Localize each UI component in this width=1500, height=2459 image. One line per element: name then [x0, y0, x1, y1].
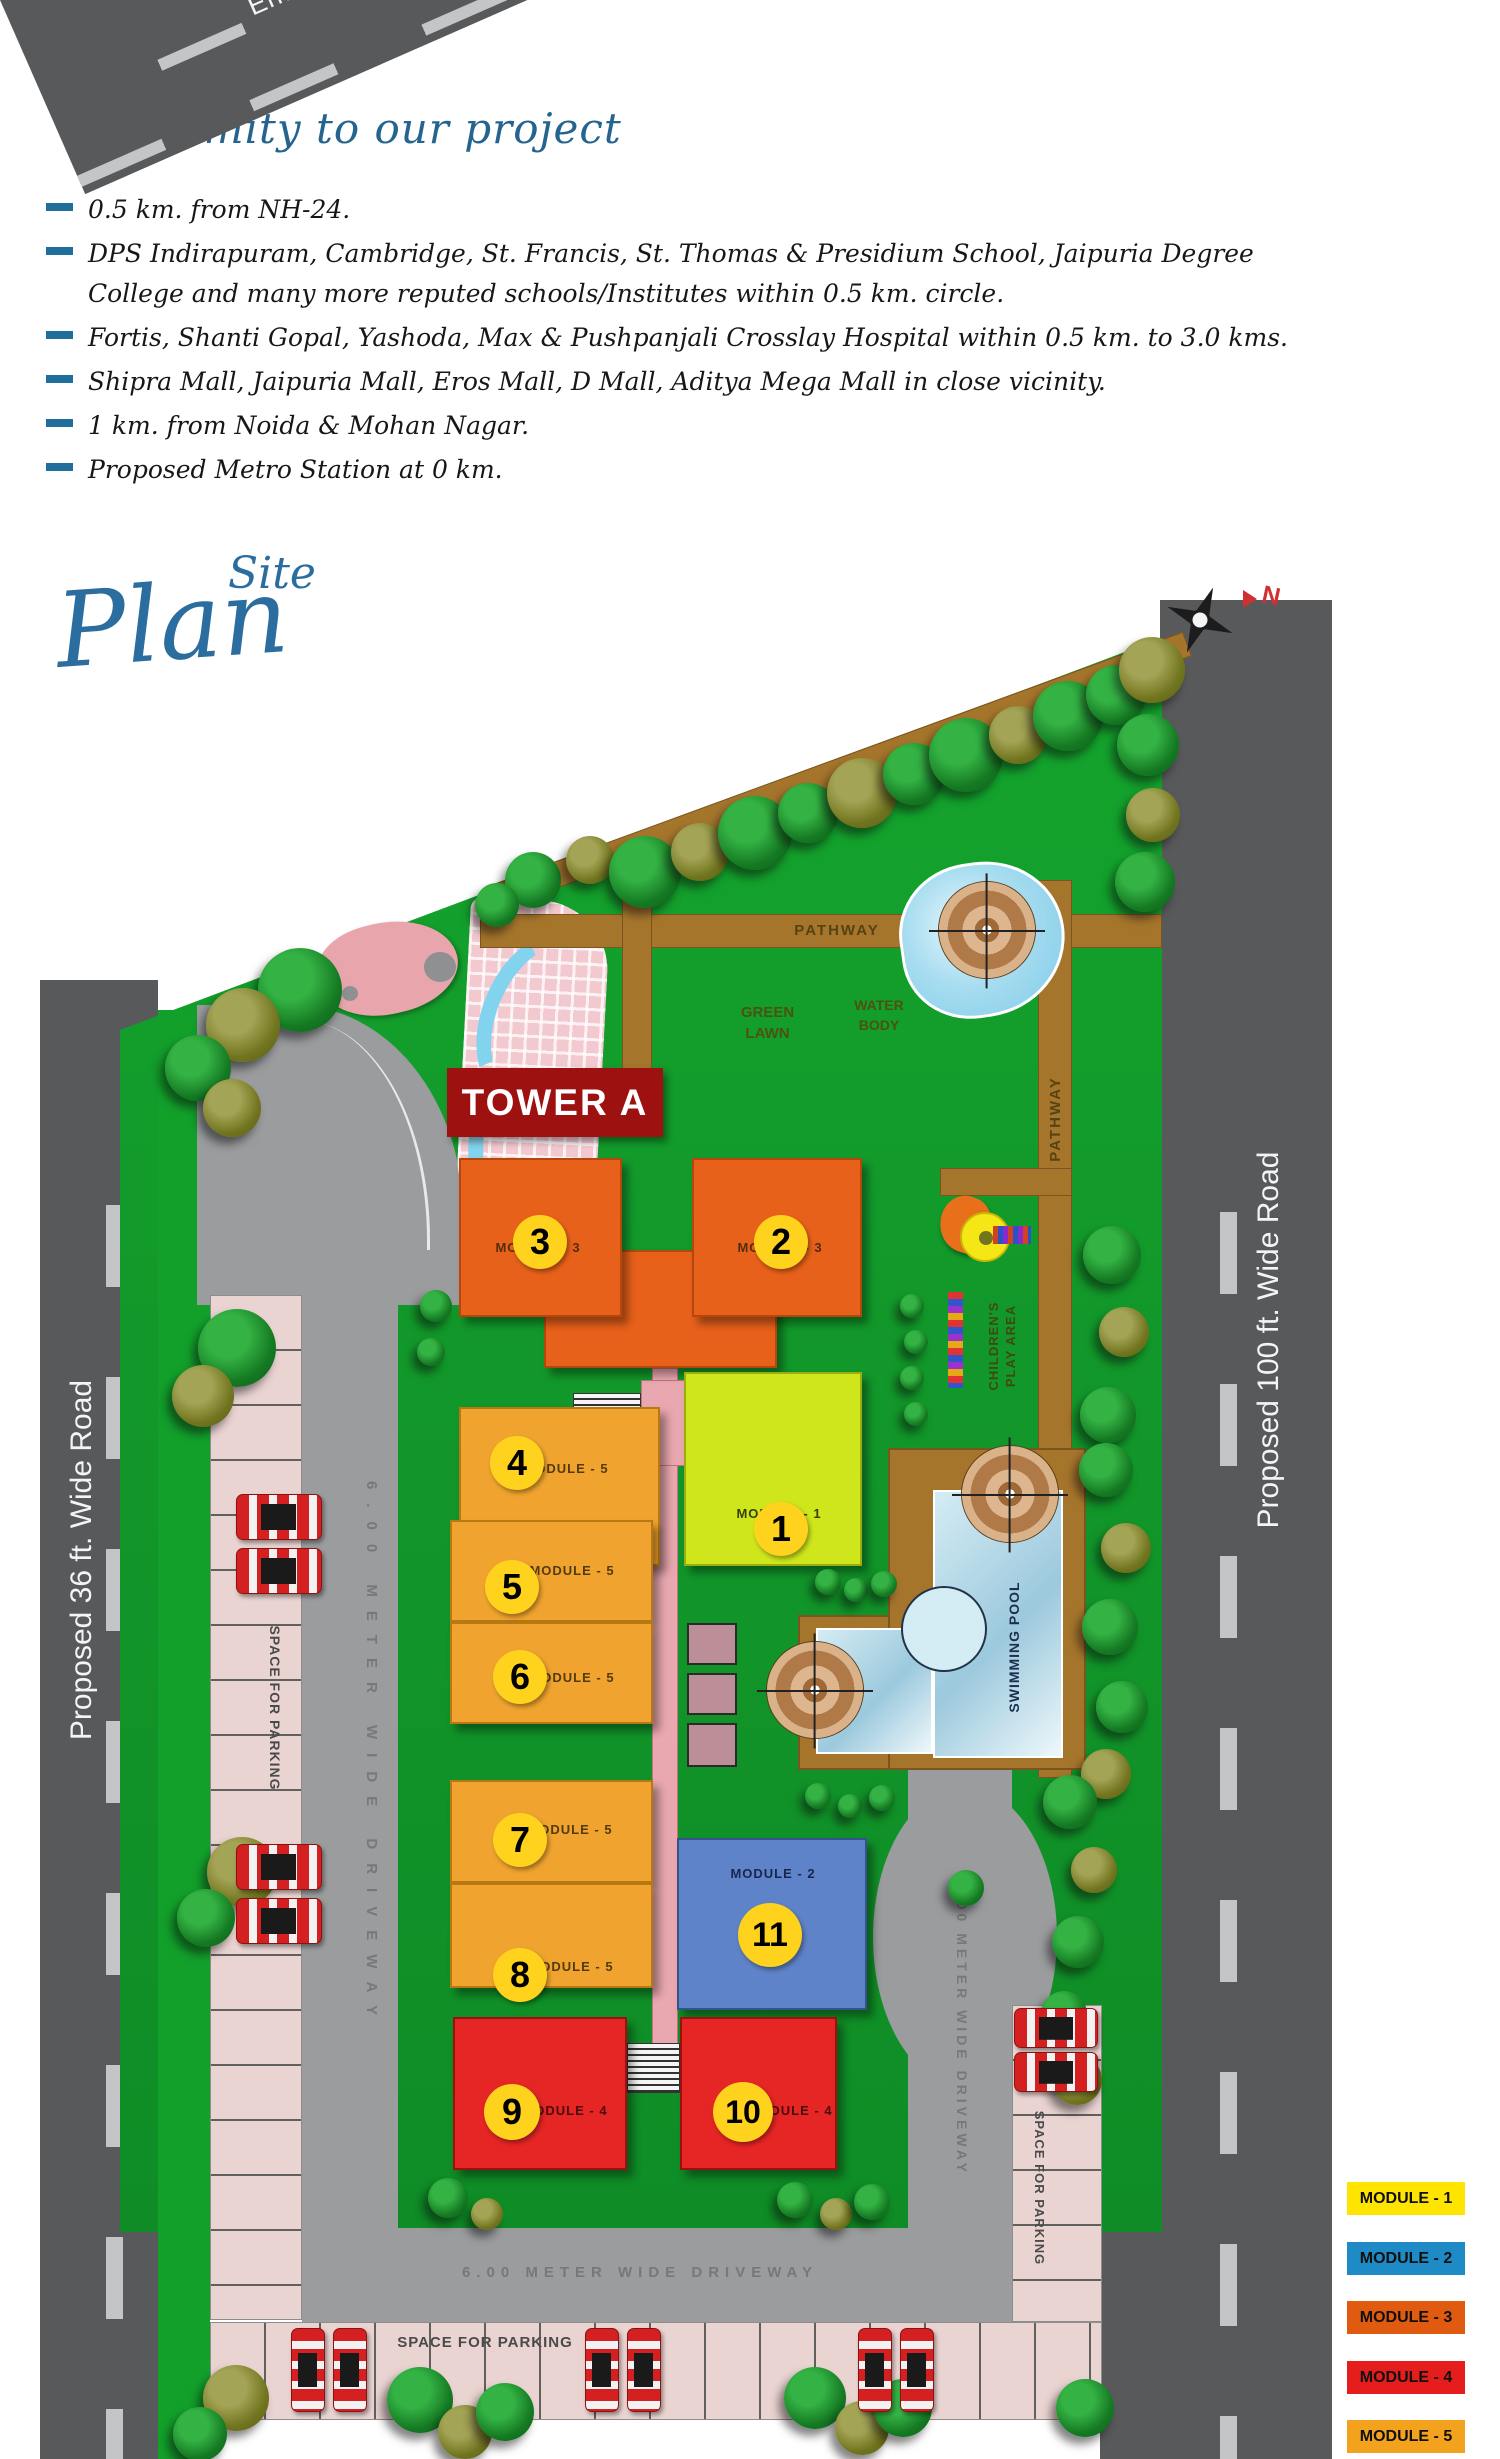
page-margin-right — [1332, 470, 1500, 2459]
tree-icon — [869, 1785, 895, 1811]
children-play-area-label: CHILDREN'S PLAY AREA — [982, 1281, 1022, 1411]
tree-icon — [1096, 1681, 1148, 1733]
proximity-item: Proposed Metro Station at 0 km. — [46, 450, 1306, 490]
fountain — [962, 1446, 1058, 1542]
parked-car-icon — [291, 2328, 325, 2412]
tree-icon — [1080, 1387, 1136, 1443]
proximity-item: 1 km. from Noida & Mohan Nagar. — [46, 406, 1306, 446]
parking-left-label: SPACE FOR PARKING — [267, 1598, 283, 1818]
driveway-left — [302, 1290, 398, 2322]
tree-icon — [805, 1783, 831, 1809]
tree-icon — [417, 1338, 445, 1366]
legend-module-2: MODULE - 2 — [1347, 2242, 1465, 2275]
tower-marker-11: 11 — [738, 1903, 802, 1967]
pathway-vertical-label: PATHWAY — [1046, 1049, 1064, 1189]
proximity-item-text: 0.5 km. from NH-24. — [88, 190, 1306, 230]
bullet-dash-icon — [46, 419, 73, 427]
merry-go-round-hub — [979, 1231, 993, 1245]
water-body-label: WATER BODY — [840, 992, 918, 1038]
tree-icon — [854, 2184, 890, 2220]
tree-icon — [1071, 1847, 1117, 1893]
tree-icon — [471, 2198, 503, 2230]
road-100ft-label: Proposed 100 ft. Wide Road — [1248, 1130, 1290, 1550]
tree-icon — [476, 2383, 534, 2441]
pool-island — [901, 1586, 987, 1672]
parked-car-icon — [236, 1844, 322, 1890]
parking-right-label: SPACE FOR PARKING — [1032, 2088, 1048, 2288]
pathway-label: PATHWAY — [782, 918, 892, 942]
fountain — [939, 882, 1035, 978]
parked-car-icon — [627, 2328, 661, 2412]
tree-icon — [904, 1402, 928, 1426]
building-label: MODULE - 5 — [529, 1563, 614, 1578]
proximity-item-text: Proposed Metro Station at 0 km. — [88, 450, 1306, 490]
tree-icon — [609, 836, 681, 908]
parked-car-icon — [333, 2328, 367, 2412]
tree-icon — [203, 1079, 261, 1137]
parking-strip-left — [210, 1295, 302, 2320]
proximity-item: DPS Indirapuram, Cambridge, St. Francis,… — [46, 234, 1306, 314]
tree-icon — [428, 2178, 468, 2218]
tree-icon — [1079, 1443, 1133, 1497]
proximity-item: Fortis, Shanti Gopal, Yashoda, Max & Pus… — [46, 318, 1306, 358]
tree-icon — [948, 1870, 984, 1906]
building-label: MODULE - 2 — [730, 1866, 815, 1881]
tree-icon — [173, 2407, 227, 2459]
tree-icon — [177, 1889, 235, 1947]
tower-marker-2: 2 — [754, 1215, 808, 1269]
tree-icon — [172, 1365, 234, 1427]
parked-car-icon — [900, 2328, 934, 2412]
parked-car-icon — [1014, 2008, 1098, 2048]
tree-icon — [1052, 1916, 1104, 1968]
tree-icon — [1126, 788, 1180, 842]
proximity-item: 0.5 km. from NH-24. — [46, 190, 1306, 230]
tower-a-banner: TOWER A — [447, 1068, 663, 1137]
parked-car-icon — [1014, 2052, 1098, 2092]
fountain — [767, 1642, 863, 1738]
plaza-stone — [342, 986, 358, 1001]
tower-marker-8: 8 — [493, 1948, 547, 2002]
road-36ft-label: Proposed 36 ft. Wide Road — [61, 1300, 103, 1820]
tree-icon — [838, 1794, 862, 1818]
tree-icon — [1115, 852, 1175, 912]
tower-marker-6: 6 — [493, 1650, 547, 1704]
stairs — [627, 2043, 680, 2093]
tree-icon — [1119, 637, 1185, 703]
tree-icon — [871, 1571, 897, 1597]
north-arrow-icon — [1243, 590, 1257, 608]
tree-icon — [1056, 2379, 1114, 2437]
tree-icon — [420, 1290, 452, 1322]
bullet-dash-icon — [46, 331, 73, 339]
play-blocks — [993, 1226, 1031, 1244]
tree-icon — [1043, 1775, 1097, 1829]
tree-icon — [904, 1330, 928, 1354]
proximity-item-text: 1 km. from Noida & Mohan Nagar. — [88, 406, 1306, 446]
legend-module-4: MODULE - 4 — [1347, 2361, 1465, 2394]
proximity-item-text: DPS Indirapuram, Cambridge, St. Francis,… — [88, 234, 1306, 314]
bullet-dash-icon — [46, 463, 73, 471]
brochure-page: Proximity to our project 0.5 km. from NH… — [0, 0, 1500, 2459]
parked-car-icon — [236, 1494, 322, 1540]
tower-marker-3: 3 — [513, 1215, 567, 1269]
lane-marking — [1220, 1212, 1237, 2459]
stair-block — [687, 1623, 737, 1665]
parked-car-icon — [236, 1898, 322, 1944]
bullet-dash-icon — [46, 247, 73, 255]
legend-module-1: MODULE - 1 — [1347, 2182, 1465, 2215]
driveway-left-label: 6.00 METER WIDE DRIVEWAY — [362, 1250, 382, 2260]
parked-car-icon — [236, 1548, 322, 1594]
stair-block — [687, 1723, 737, 1767]
proximity-item-text: Fortis, Shanti Gopal, Yashoda, Max & Pus… — [88, 318, 1306, 358]
tower-marker-1: 1 — [754, 1502, 808, 1556]
driveway-right-label: 6.00 METER WIDE DRIVEWAY — [953, 1794, 971, 2264]
tree-icon — [1082, 1599, 1138, 1655]
tower-marker-7: 7 — [493, 1813, 547, 1867]
tree-icon — [820, 2198, 852, 2230]
play-blocks — [948, 1292, 963, 1388]
tree-icon — [1117, 714, 1179, 776]
parked-car-icon — [585, 2328, 619, 2412]
stair-block — [687, 1673, 737, 1715]
tree-icon — [844, 1578, 868, 1602]
tower-marker-9: 9 — [484, 2084, 540, 2140]
swimming-pool-label: SWIMMING POOL — [1005, 1562, 1023, 1732]
green-lawn-label: GREEN LAWN — [720, 1000, 815, 1046]
proximity-item: Shipra Mall, Jaipuria Mall, Eros Mall, D… — [46, 362, 1306, 402]
road-150ft: 150 ft. Wide Road Entry/Exit — [0, 0, 1500, 194]
tree-icon — [900, 1294, 924, 1318]
tower-marker-5: 5 — [485, 1560, 539, 1614]
parking-bottom-label: SPACE FOR PARKING — [385, 2332, 585, 2352]
bullet-dash-icon — [46, 203, 73, 211]
tree-icon — [566, 836, 614, 884]
tree-icon — [777, 2182, 813, 2218]
tree-icon — [1099, 1307, 1149, 1357]
tower-marker-10: 10 — [713, 2082, 773, 2142]
legend-module-5: MODULE - 5 — [1347, 2420, 1465, 2453]
road-100ft — [1160, 600, 1332, 2459]
tower-marker-4: 4 — [490, 1436, 544, 1490]
driveway-bottom-label: 6.00 METER WIDE DRIVEWAY — [440, 2262, 840, 2282]
tree-icon — [1083, 1226, 1141, 1284]
legend-module-3: MODULE - 3 — [1347, 2301, 1465, 2334]
parked-car-icon — [858, 2328, 892, 2412]
tree-icon — [815, 1569, 841, 1595]
tree-icon — [900, 1366, 924, 1390]
bullet-dash-icon — [46, 375, 73, 383]
plaza-stone — [424, 952, 456, 982]
tree-icon — [1101, 1523, 1151, 1573]
logo-plan-word: Plan — [52, 554, 292, 692]
building-module4-9 — [453, 2017, 627, 2170]
proximity-item-text: Shipra Mall, Jaipuria Mall, Eros Mall, D… — [88, 362, 1306, 402]
tree-icon — [475, 883, 519, 927]
